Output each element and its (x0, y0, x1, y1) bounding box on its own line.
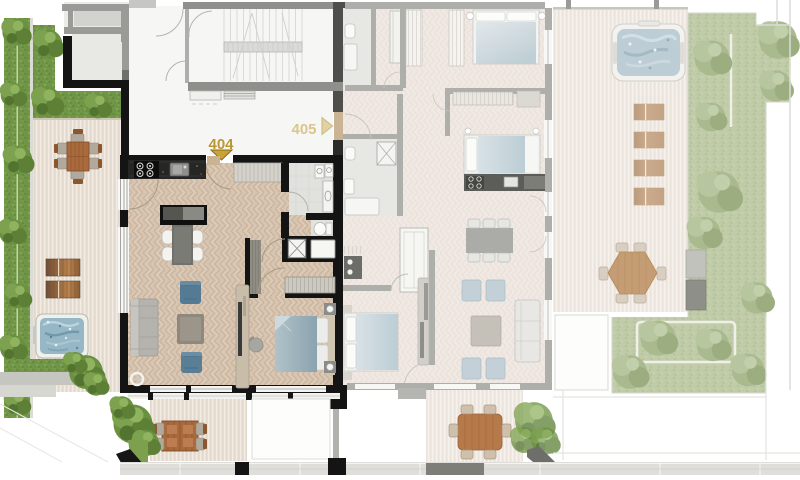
svg-text:405: 405 (291, 121, 316, 138)
